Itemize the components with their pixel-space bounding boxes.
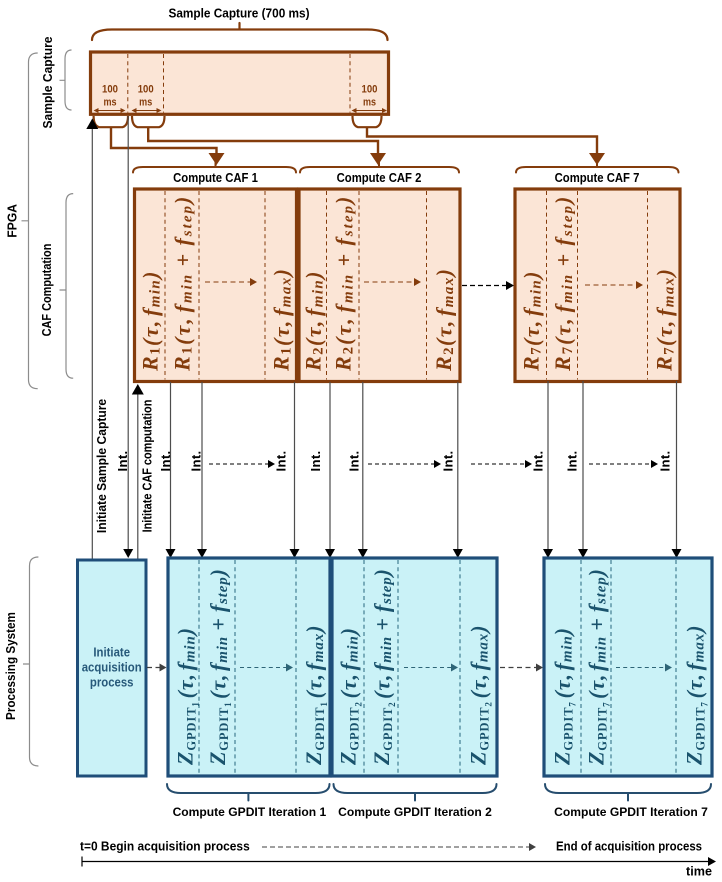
- svg-text:ms: ms: [103, 97, 116, 109]
- svg-text:100: 100: [362, 84, 378, 96]
- svg-text:Inititate CAF computation: Inititate CAF computation: [140, 400, 155, 533]
- svg-text:Compute CAF 7: Compute CAF 7: [555, 170, 640, 185]
- svg-text:Int.: Int.: [565, 451, 580, 472]
- svg-text:Int.: Int.: [115, 451, 130, 472]
- svg-text:FPGA: FPGA: [5, 204, 19, 238]
- svg-text:Compute GPDIT Iteration 7: Compute GPDIT Iteration 7: [554, 805, 708, 819]
- svg-text:Int.: Int.: [441, 451, 456, 472]
- svg-text:Int.: Int.: [531, 451, 546, 472]
- svg-text:Processing System: Processing System: [4, 612, 19, 720]
- svg-text:acquisition: acquisition: [82, 660, 142, 675]
- svg-text:Compute GPDIT Iteration 1: Compute GPDIT Iteration 1: [173, 805, 327, 819]
- svg-text:CAF Computation: CAF Computation: [39, 244, 54, 337]
- svg-text:Int.: Int.: [189, 451, 204, 472]
- svg-text:time: time: [686, 863, 712, 878]
- svg-text:Compute CAF 1: Compute CAF 1: [173, 170, 258, 185]
- svg-text:100: 100: [102, 84, 118, 96]
- svg-text:Int.: Int.: [158, 451, 173, 472]
- svg-text:Initiate Sample Capture: Initiate Sample Capture: [95, 399, 109, 533]
- svg-text:Compute CAF 2: Compute CAF 2: [337, 170, 422, 185]
- svg-text:Initiate: Initiate: [93, 645, 130, 660]
- svg-text:ms: ms: [363, 97, 376, 109]
- svg-text:process: process: [90, 675, 134, 690]
- svg-text:Int.: Int.: [308, 451, 323, 472]
- svg-text:t=0 Begin acquisition process: t=0 Begin acquisition process: [80, 839, 250, 854]
- svg-text:Sample Capture: Sample Capture: [41, 36, 55, 128]
- svg-text:100: 100: [138, 84, 154, 96]
- svg-text:Int.: Int.: [347, 451, 362, 472]
- svg-text:End of acquisition process: End of acquisition process: [556, 839, 702, 854]
- svg-text:Sample Capture (700 ms): Sample Capture (700 ms): [168, 6, 309, 21]
- svg-text:ms: ms: [139, 97, 152, 109]
- svg-text:Int.: Int.: [658, 451, 673, 472]
- svg-text:Int.: Int.: [274, 451, 289, 472]
- svg-text:Compute GPDIT Iteration 2: Compute GPDIT Iteration 2: [338, 805, 492, 819]
